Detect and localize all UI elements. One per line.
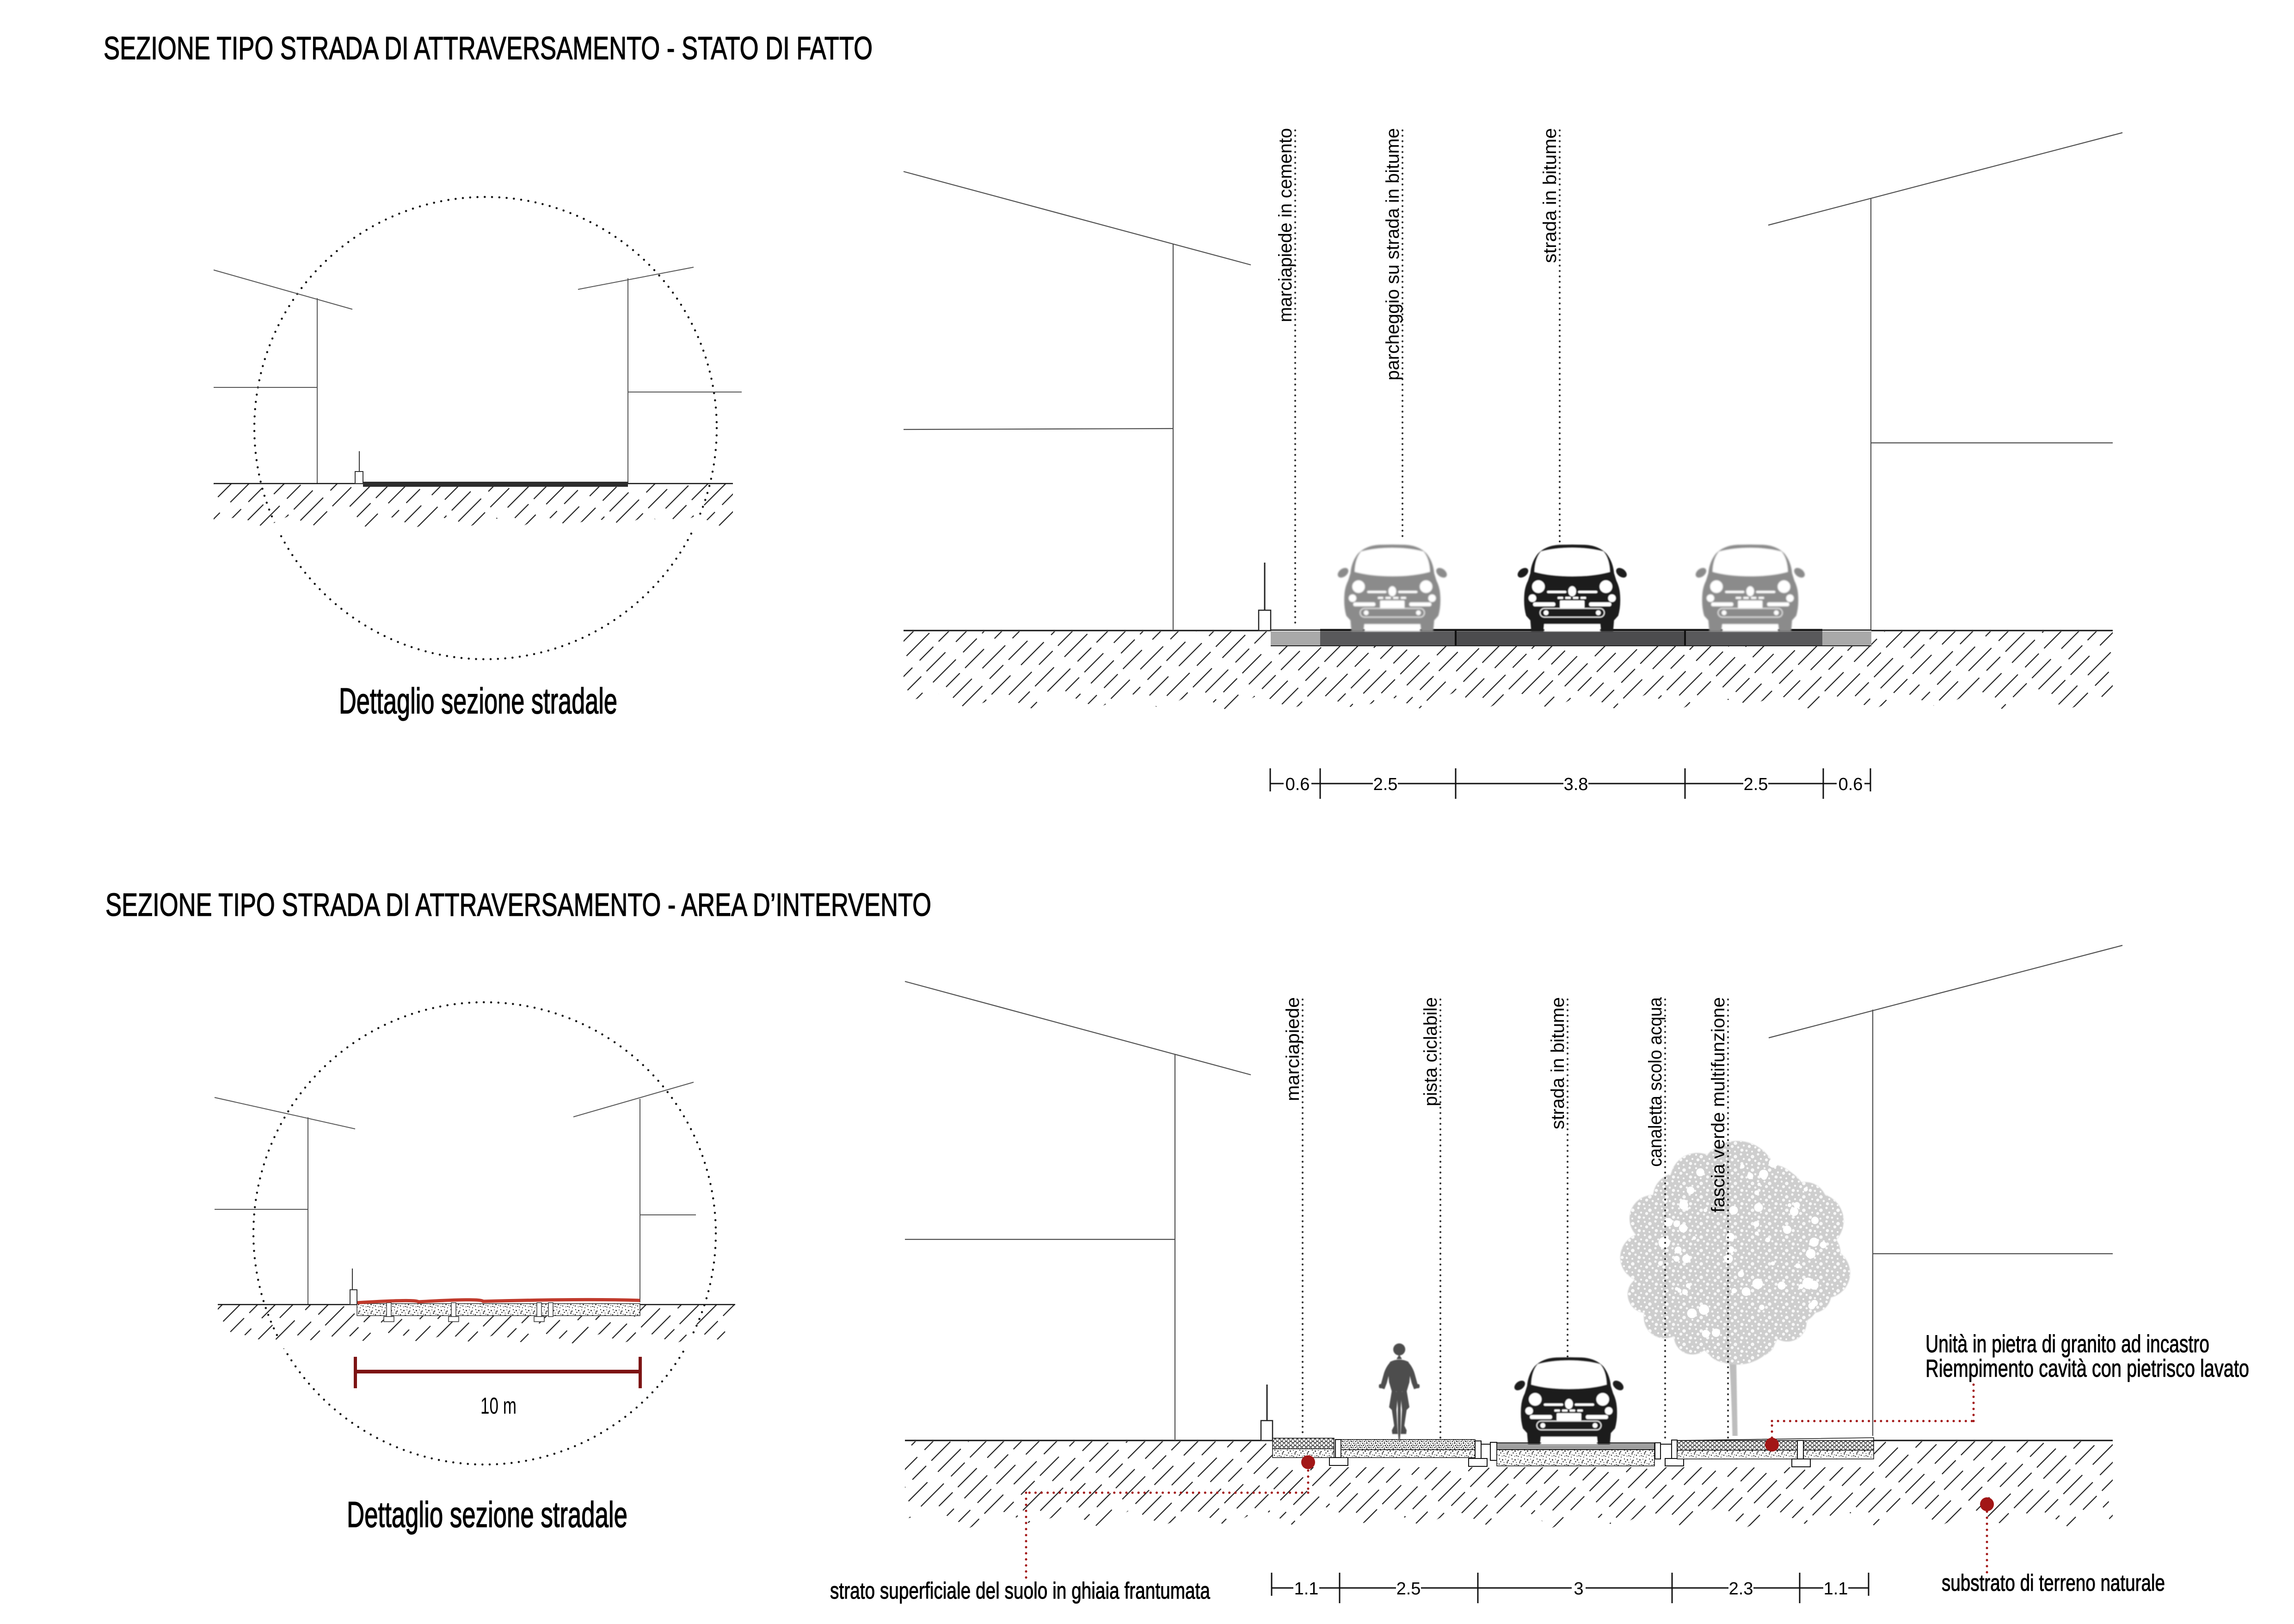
svg-text:3: 3 [1574,1579,1583,1599]
svg-text:0.6: 0.6 [1285,775,1310,794]
svg-text:SEZIONE TIPO STRADA DI ATTRAVE: SEZIONE TIPO STRADA DI ATTRAVERSAMENTO -… [104,30,873,66]
svg-text:Unità in pietra di granito ad: Unità in pietra di granito ad incastro [1925,1330,2209,1358]
svg-text:strada in bitume: strada in bitume [1540,128,1560,263]
svg-text:pista ciclabile: pista ciclabile [1421,997,1441,1106]
svg-text:Dettaglio sezione stradale: Dettaglio sezione stradale [339,680,617,721]
svg-text:strada in bitume: strada in bitume [1548,997,1568,1129]
svg-text:10 m: 10 m [480,1393,517,1419]
svg-text:fascia verde multifunzione: fascia verde multifunzione [1708,997,1728,1213]
svg-text:Riempimento cavità con pietris: Riempimento cavità con pietrisco lavato [1925,1355,2249,1382]
svg-text:2.5: 2.5 [1744,775,1768,794]
svg-text:2.5: 2.5 [1396,1579,1421,1599]
svg-text:canaletta scolo acqua: canaletta scolo acqua [1645,997,1666,1167]
svg-text:2.5: 2.5 [1373,775,1398,794]
svg-text:SEZIONE TIPO STRADA DI ATTRAVE: SEZIONE TIPO STRADA DI ATTRAVERSAMENTO -… [105,887,931,923]
svg-text:marciapiede: marciapiede [1283,997,1303,1101]
svg-text:marciapiede in cemento: marciapiede in cemento [1275,128,1296,322]
svg-text:Dettaglio sezione stradale: Dettaglio sezione stradale [347,1494,627,1535]
svg-text:1.1: 1.1 [1824,1579,1848,1599]
svg-text:strato superficiale del suolo: strato superficiale del suolo in ghiaia … [830,1578,1210,1604]
svg-text:2.3: 2.3 [1729,1579,1753,1599]
svg-text:substrato di terreno naturale: substrato di terreno naturale [1942,1570,2165,1596]
svg-text:parcheggio su strada in bitume: parcheggio su strada in bitume [1383,128,1403,380]
svg-text:0.6: 0.6 [1839,775,1863,794]
svg-text:3.8: 3.8 [1564,775,1588,794]
svg-text:1.1: 1.1 [1294,1579,1319,1599]
